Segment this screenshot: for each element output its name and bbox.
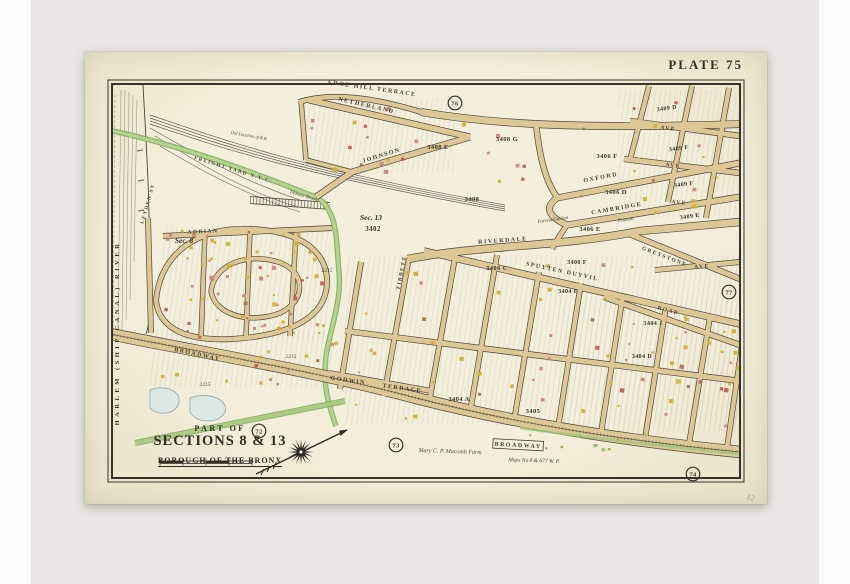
svg-text:3408 G: 3408 G — [496, 136, 518, 143]
svg-text:Maps No 8 & 677 W. P.: Maps No 8 & 677 W. P. — [507, 457, 560, 465]
svg-text:76: 76 — [451, 100, 459, 107]
svg-text:3404 A: 3404 A — [448, 396, 469, 403]
svg-text:3408: 3408 — [465, 196, 480, 203]
svg-text:3402: 3402 — [365, 225, 381, 233]
svg-text:Mary C. P. Macomb Farm: Mary C. P. Macomb Farm — [417, 448, 482, 456]
svg-text:3406 C: 3406 C — [486, 265, 508, 272]
svg-text:3406 F: 3406 F — [597, 153, 618, 160]
title-borough: BOROUGH OF THE BRONX — [158, 456, 282, 467]
svg-text:Sec. 13: Sec. 13 — [360, 213, 382, 222]
svg-text:3404 F: 3404 F — [558, 289, 578, 295]
title-block: PART OF SECTIONS 8 & 13 BOROUGH OF THE B… — [126, 424, 314, 468]
title-sections: SECTIONS 8 & 13 — [126, 433, 314, 450]
svg-text:3404 D: 3404 D — [632, 354, 653, 360]
svg-text:AVE: AVE — [694, 264, 710, 271]
svg-text:Sec. 8: Sec. 8 — [175, 236, 194, 245]
map-content — [110, 85, 745, 454]
svg-text:12: 12 — [746, 492, 756, 503]
svg-text:3408 E: 3408 E — [427, 144, 448, 151]
svg-text:3406 E: 3406 E — [579, 226, 600, 233]
svg-text:FREIGHT YARD N.Y.C.: FREIGHT YARD N.Y.C. — [193, 156, 273, 185]
svg-text:2215: 2215 — [286, 354, 297, 360]
svg-text:3404 J: 3404 J — [644, 321, 663, 327]
water-bodies — [150, 388, 226, 421]
svg-text:74: 74 — [689, 471, 697, 478]
photo-stage: EDGE HILL TERRACENETHERLANDJOHNSONOXFORD… — [0, 0, 850, 584]
svg-text:HARLEM (SHIP CANAL) RIVER: HARLEM (SHIP CANAL) RIVER — [114, 241, 121, 426]
svg-text:73: 73 — [392, 442, 400, 449]
svg-text:Old Location of R.R.: Old Location of R.R. — [230, 130, 268, 141]
svg-text:2215: 2215 — [200, 382, 211, 388]
atlas-map-svg: EDGE HILL TERRACENETHERLANDJOHNSONOXFORD… — [0, 0, 850, 584]
svg-text:2215: 2215 — [322, 268, 333, 274]
svg-text:3406 D: 3406 D — [605, 189, 627, 196]
svg-text:OXFORD: OXFORD — [583, 172, 619, 185]
svg-text:Putnam: Putnam — [617, 217, 634, 224]
svg-text:3405: 3405 — [526, 408, 541, 415]
title-part-of: PART OF — [126, 424, 314, 433]
svg-text:77: 77 — [725, 289, 733, 296]
plate-number: PLATE 75 — [616, 57, 743, 73]
svg-text:3400 F: 3400 F — [567, 260, 587, 266]
